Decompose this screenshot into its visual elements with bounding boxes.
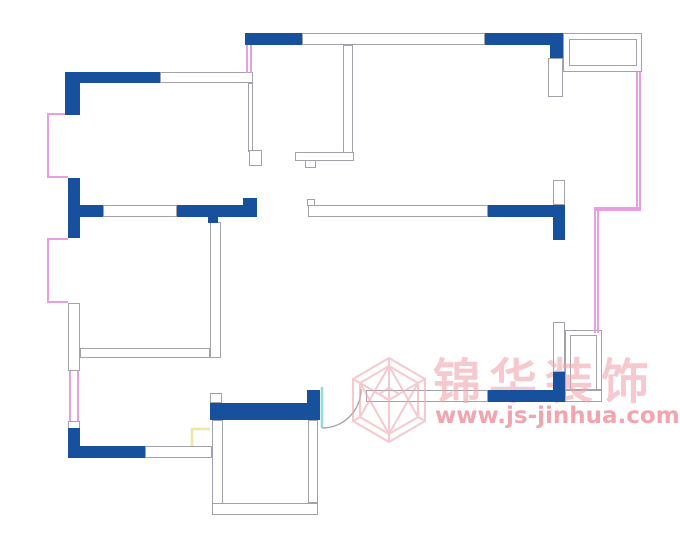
wall-mid-notch [208,217,218,223]
watermark-url-text: www.js-jinhua.com [435,405,680,428]
wall-bottom-mid [488,390,565,402]
floor-plan-canvas: 锦华装饰 www.js-jinhua.com [0,0,680,535]
cabinet-lines [192,429,210,446]
jinhua-hexagon-cube-logo [346,355,432,445]
wall-right-upper [553,205,565,240]
wall-mid-tab [243,198,257,205]
wall-mid-left-seg [177,205,257,217]
wall-left-mid [68,178,80,238]
wall-room-top-bar [210,403,308,420]
wall-mid-left-stub [80,205,103,217]
wall-bottom-left [68,446,145,458]
wall-top-a [245,33,302,45]
wall-room-top-right-block [307,390,320,420]
wall-topleft-room-corner [65,72,80,115]
wall-top-right-corner [550,33,563,58]
